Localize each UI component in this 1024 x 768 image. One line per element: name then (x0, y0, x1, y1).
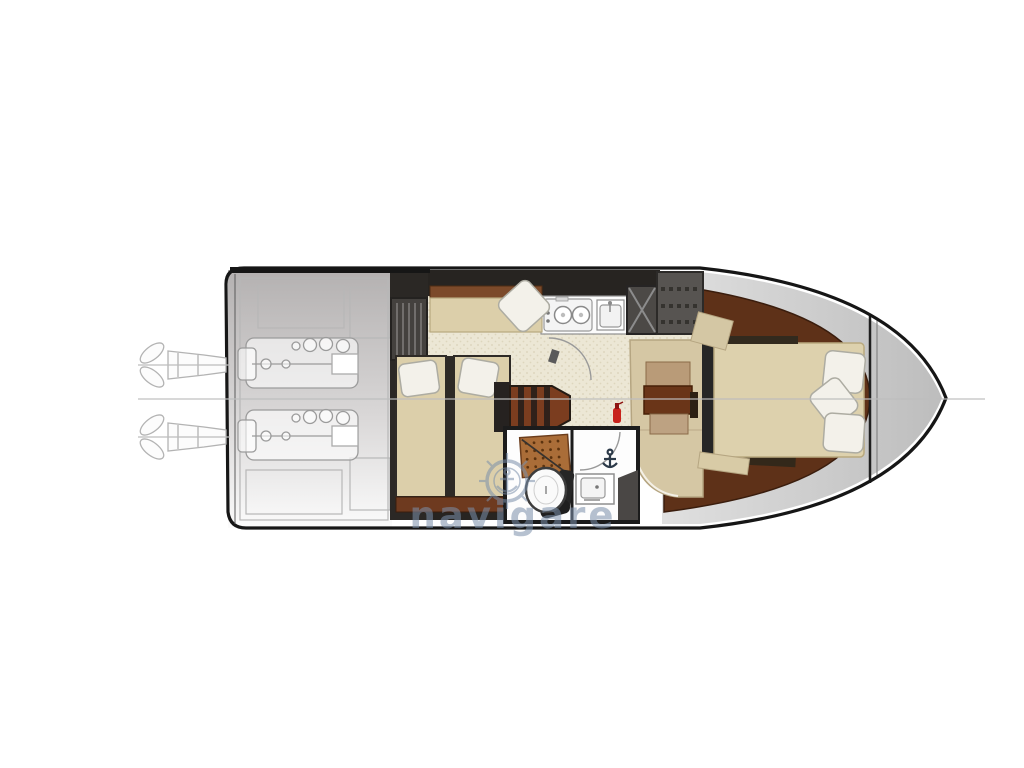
sterndrive-units (137, 339, 226, 462)
table-top-lower (650, 414, 688, 434)
watermark-text: navigare (410, 494, 617, 537)
aft-twin-berths (396, 356, 510, 512)
crossed-cabinet (627, 286, 657, 334)
table-shadow (690, 392, 698, 418)
stove-icon (544, 297, 592, 331)
dinette (630, 340, 703, 497)
head-corner-locker (618, 470, 638, 520)
port-engine (238, 338, 358, 389)
companionway-stairs (494, 382, 570, 432)
galley-sink-icon (597, 300, 624, 330)
wardrobe-cabinet (391, 298, 427, 360)
aft-top-berth (430, 278, 552, 334)
pillow (823, 413, 866, 454)
pillow (457, 357, 500, 398)
table-top-upper (646, 362, 690, 388)
yacht-floor-plan: navigare (0, 0, 1024, 768)
salon-table (644, 386, 692, 414)
yacht-floorplan-page: navigare (0, 0, 1024, 768)
pillow (398, 360, 440, 398)
stair-treads (518, 387, 550, 429)
starboard-engine (238, 410, 358, 461)
bed-side-gap (702, 342, 714, 458)
